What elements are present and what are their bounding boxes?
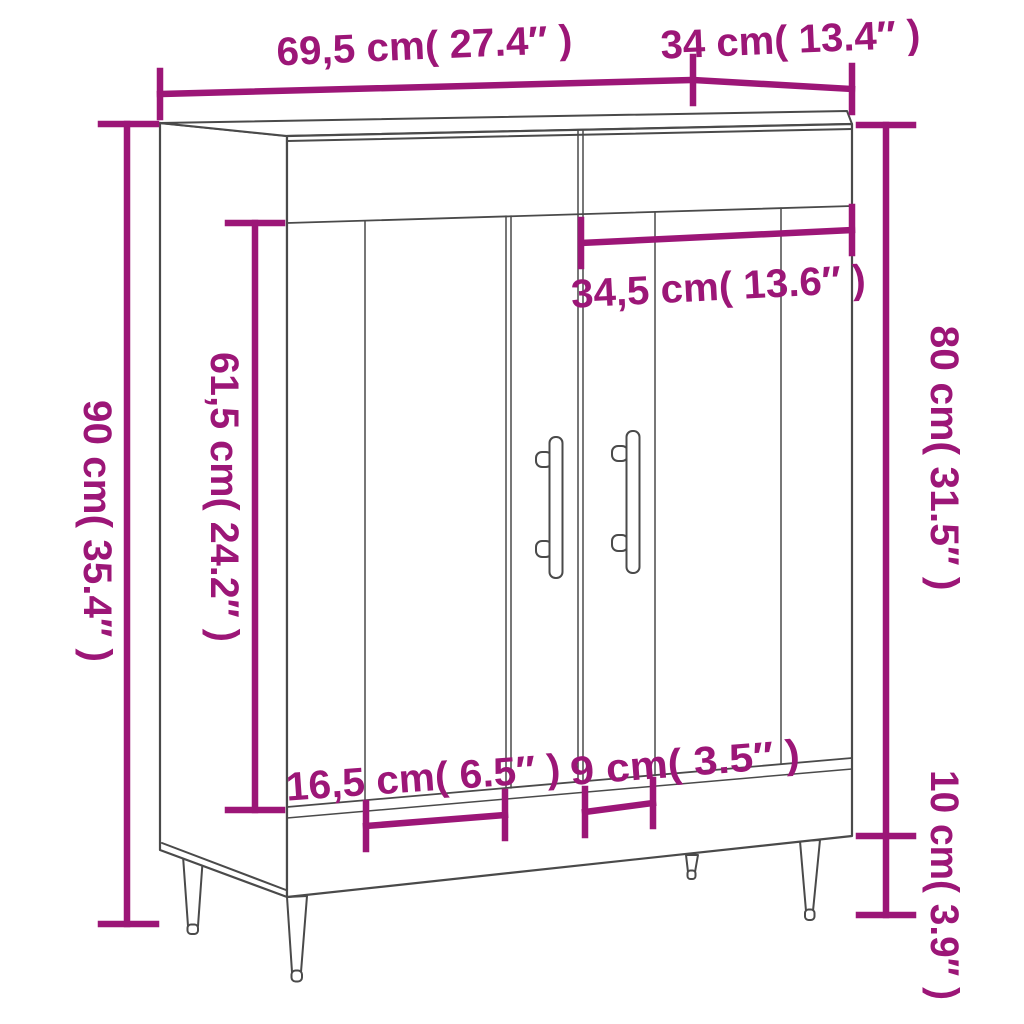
leg-back-left-foot [188,925,199,935]
leg-front-right-foot [805,910,815,921]
sideboard-dimension-diagram: 69,5 cm( 27.4″ ) 34 cm( 13.4″ ) 90 cm( 3… [0,0,1024,1024]
door-height-label: 61,5 cm( 24.2″ ) [202,352,246,642]
cabinet-drawing [160,111,852,982]
top-width-label: 69,5 cm( 27.4″ ) [276,18,574,75]
top-depth-label: 34 cm( 13.4″ ) [660,12,922,67]
body-height-label: 80 cm( 31.5″ ) [922,326,966,591]
overall-height-label: 90 cm( 35.4″ ) [75,400,119,662]
dim-top-depth [693,66,852,112]
dim-body-height [859,125,913,836]
leg-front-left [287,896,307,972]
diagram-canvas: 69,5 cm( 27.4″ ) 34 cm( 13.4″ ) 90 cm( 3… [0,0,1024,1024]
leg-back-left [183,856,203,926]
leg-back-right [686,855,698,872]
leg-front-right [800,840,820,911]
leg-height-label: 10 cm( 3.9″ ) [922,770,966,1000]
left-door-handle [550,437,563,578]
leg-front-left-foot [292,971,303,982]
leg-back-right-foot [688,871,696,880]
right-door-handle [627,431,640,573]
dim-leg-height [859,836,913,915]
